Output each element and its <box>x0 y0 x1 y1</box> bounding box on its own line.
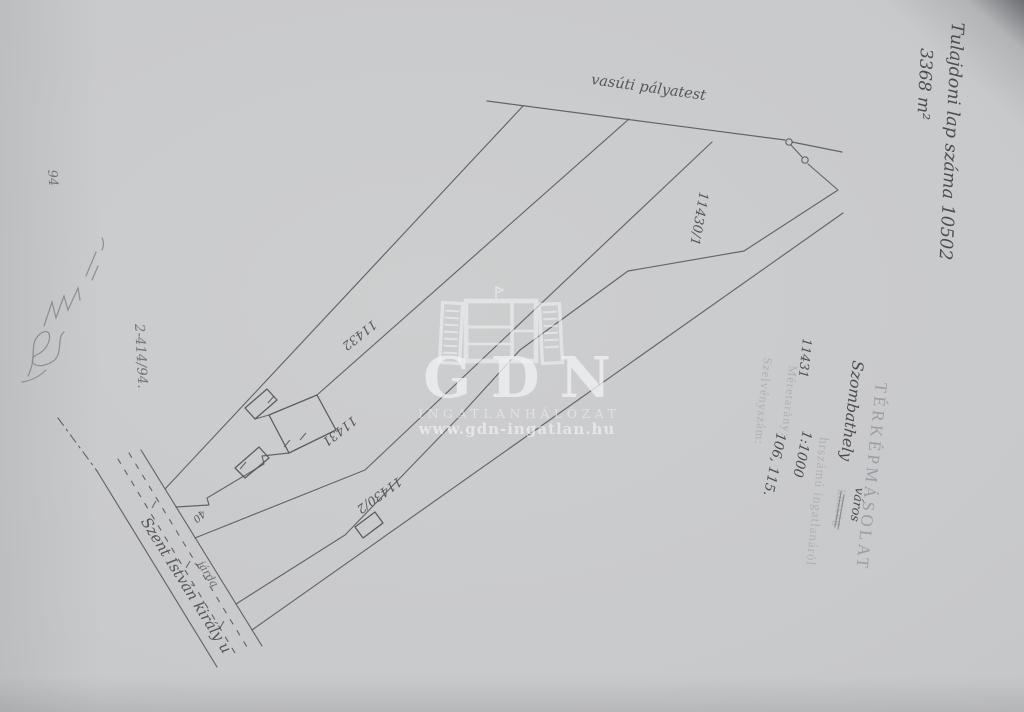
area-note: 3368 m² <box>912 48 936 121</box>
survey-point-icon <box>802 157 808 163</box>
corner-number-note: 94 <box>44 169 60 187</box>
parcel-boundaries <box>165 106 843 630</box>
building-outlines <box>235 389 383 538</box>
street-name-label: Szent István király u <box>137 514 235 656</box>
parcel-label-11431: 11431 <box>319 413 360 449</box>
owner-sheet-note: Tulajdoni lap száma 10502 <box>935 22 967 261</box>
parcel-label-11430-1: 11430/1 <box>686 191 710 247</box>
parcel-label-11430-2: 11430/2 <box>354 474 405 517</box>
parcel-label-11432: 11432 <box>339 317 380 353</box>
small-building-outline <box>355 512 383 538</box>
railway-label: vasúti pályatest <box>590 72 707 104</box>
house-number-label: 40 <box>190 507 208 525</box>
scale-label: Méretarány: <box>778 365 799 438</box>
sheet-label: Szelvényszám: <box>752 357 775 446</box>
signature-scribble <box>22 238 104 382</box>
settlement-name: Szombathely <box>837 360 867 463</box>
scanned-map-document: vasúti pályatest 11430/1 11432 11431 114… <box>0 0 1024 712</box>
survey-point-icon <box>786 139 792 145</box>
cadastral-map-drawing: vasúti pályatest 11430/1 11432 11431 114… <box>0 0 1024 712</box>
railway-boundary <box>487 101 842 163</box>
file-number-note: 2-414/94. <box>131 322 150 389</box>
